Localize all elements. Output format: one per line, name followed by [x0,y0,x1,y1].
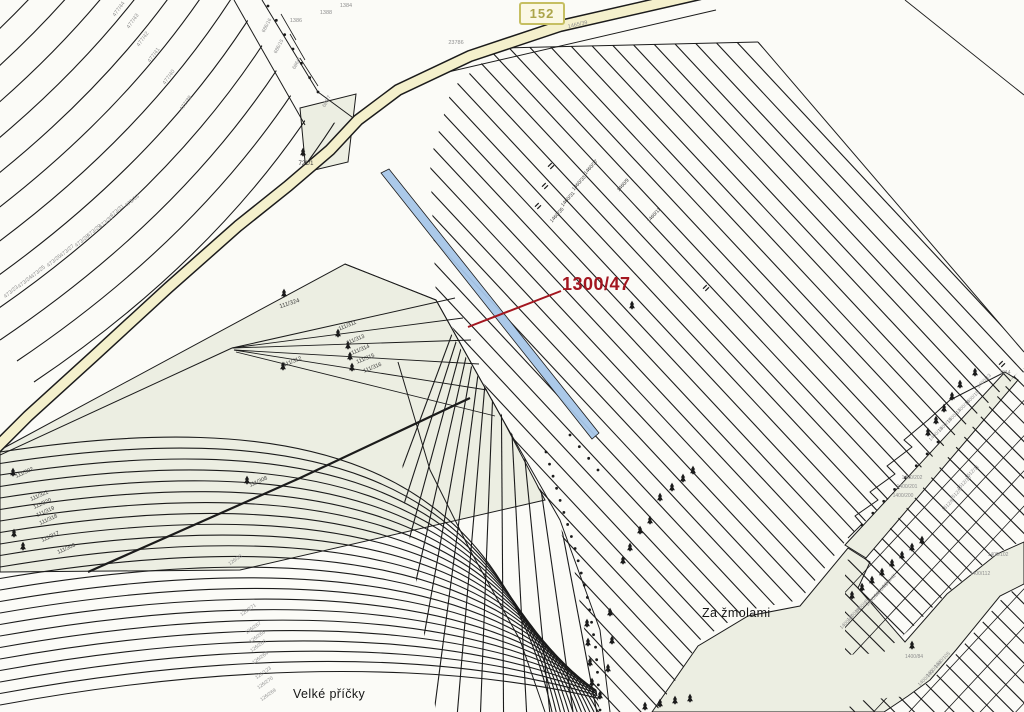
parcel-number-label: 1386 [290,18,302,24]
tree-icon [879,568,885,577]
parcel-number-label: 477/41 [147,47,162,64]
place-name-velke-pricky: Velké příčky [293,687,365,701]
survey-point [861,524,864,527]
tree-icon [869,576,875,585]
survey-point [552,475,555,478]
survey-point [588,608,591,611]
parcel-number-label: 473/28 [74,234,91,249]
parcel-number-label: 126/269 [259,687,277,702]
road-number-badge: 152 [519,2,565,25]
tree-icon [605,664,611,673]
tree-icon [620,556,626,565]
parcel-number-label: 1400/202 [902,475,923,481]
survey-point [595,658,598,661]
tree-icon [972,368,978,377]
tree-icon [597,691,603,700]
tree-icon [642,702,648,711]
parcel-number-label: 686/16 [261,17,274,34]
parcel-number-label: 1400/112 [970,571,991,577]
parcel-boundary [500,42,758,48]
survey-point [893,488,896,491]
slope-mark-icon [542,183,548,189]
survey-point [597,469,600,472]
tree-icon [949,392,955,401]
survey-point [586,596,589,599]
survey-point [926,452,929,455]
parcel-number-label: 473/24 [17,275,34,290]
survey-point [596,671,599,674]
tree-icon [281,289,287,298]
parcel-number-label: 1400/102 [988,552,1009,558]
parcel-number-label: 1384 [340,3,352,9]
parcel-number-label: 477/39 [179,95,194,112]
survey-point [555,487,558,490]
parcel-number-label: 721/1 [298,161,314,167]
survey-point [275,19,278,22]
parcel-number-label: 1460/37 [583,158,600,176]
parcel-number-label: 473/25 [30,265,47,280]
cadastral-map[interactable]: 473/33473/31473/30473/29473/28473/27473/… [0,0,1024,712]
survey-point [594,646,597,649]
parcel-number-label: 1460/31 [560,190,577,208]
parcel-number-label: 1512/11 [964,464,981,481]
parcel-number-label: 477/44 [112,1,127,18]
survey-point [548,463,551,466]
parcel-number-label: 23786 [448,40,463,46]
parcel-boundary [758,42,1024,352]
tree-icon [657,493,663,502]
survey-point [599,709,602,712]
parcel-number-label: 473/23 [3,285,20,300]
survey-point [597,683,600,686]
tree-icon [899,551,905,560]
survey-point [590,621,593,624]
tree-icon [909,543,915,552]
parcel-number-label: 1460/35 [549,206,566,224]
survey-point [559,499,562,502]
parcel-number-label: 1460/11 [646,207,662,224]
slope-mark-icon [703,285,709,291]
parcel-number-label: 686/15 [273,38,286,55]
survey-point [592,633,595,636]
survey-point [871,512,874,515]
survey-point [587,457,590,460]
survey-point [583,584,586,587]
slope-mark-icon [535,203,541,209]
slope-mark-icon [999,361,1005,367]
parcel-boundary [905,0,1024,95]
survey-point [283,33,286,36]
parcel-number-label: 473/33 [124,194,141,209]
parcel-number-label: 1400/201 [897,484,918,490]
survey-point [937,441,940,444]
survey-point [292,48,295,51]
parcel-number-label: 1400/84 [905,654,923,660]
parcel-boundary [290,34,305,60]
highlighted-parcel-label: 1300/47 [562,274,631,295]
tree-icon [889,559,895,568]
parcel-number-label: 1460/33 [571,174,588,192]
survey-point [915,464,918,467]
tree-icon [629,301,635,310]
parcel-number-label: 1400/200 [893,493,914,499]
survey-point [566,523,569,526]
survey-point [562,511,565,514]
parcel-boundary [300,58,318,86]
survey-point [578,445,581,448]
parcel-number-label: 477/42 [136,31,151,48]
survey-point [317,91,320,94]
survey-point [267,5,270,8]
survey-point [882,500,885,503]
survey-point [574,547,577,550]
parcel-number-label: 477/43 [126,13,141,30]
survey-point [577,559,580,562]
survey-point [308,76,311,79]
parcel-number-label: 1514 [999,370,1010,376]
tree-icon [584,619,590,628]
survey-point [545,451,548,454]
parcel-number-label: 477/40 [162,69,177,86]
tree-icon [957,380,963,389]
parcel-number-label: 1388 [320,10,332,16]
survey-point [570,535,573,538]
tree-icon [680,474,686,483]
map-canvas: 473/33473/31473/30473/29473/28473/27473/… [0,0,1024,712]
parcel-number-label: 1460/9 [616,177,631,193]
tree-icon [669,483,675,492]
tree-icon [585,638,591,647]
survey-point [580,572,583,575]
place-name-za-zmolami: Za žmolami [702,606,771,620]
survey-point [569,434,572,437]
